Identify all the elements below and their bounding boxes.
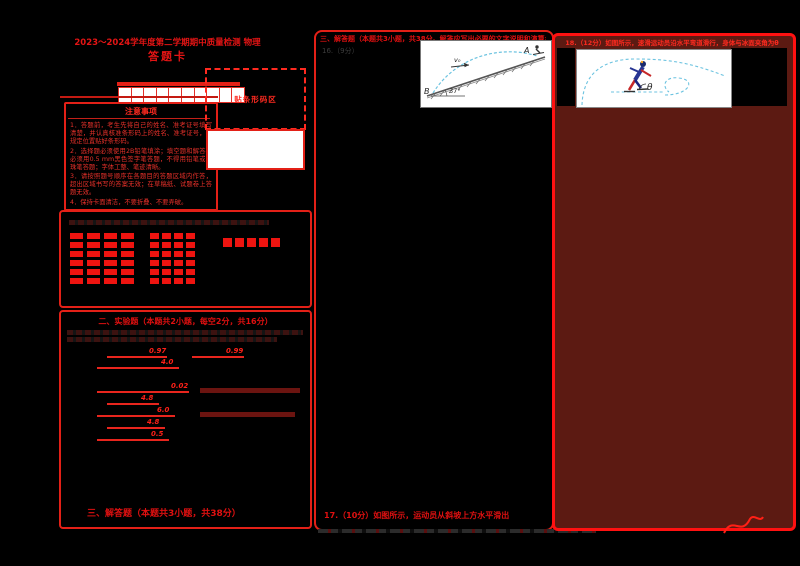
exam-number-cell [118, 87, 132, 103]
label-theta: θ [647, 83, 653, 93]
answer-bubble [104, 242, 117, 248]
answer-sheet-page: 2023～2024学年度第二学期期中质量检测 物理 答题卡 注意事项 1．答题前… [0, 0, 800, 566]
answer-bubble [186, 269, 195, 275]
answer-bubble [150, 251, 159, 257]
answer-bubble [186, 278, 195, 284]
answer-bubble [121, 278, 134, 284]
faint-print-line [69, 220, 269, 225]
answer-bubble [174, 251, 183, 257]
notice-box: 注意事项 1．答题前，考生先将自己的姓名、准考证号填写清楚，并认真核准条形码上的… [64, 102, 218, 211]
solution-section-header: 三、解答题（本题共3小题，共38分） [87, 506, 302, 519]
choice-section [59, 210, 312, 308]
answer-bubble [150, 269, 159, 275]
q16-section: 三、解答题（本题共3小题，共38分。解答应写出必要的文字说明和演算步骤） 16.… [314, 30, 554, 531]
answer-blank [107, 427, 165, 429]
track-curves [582, 59, 725, 105]
faint-question-text [67, 330, 303, 335]
notice-item: 2．选择题必须使用2B铅笔填涂；填空题和解答题必须用0.5 mm黑色签字笔答题，… [70, 148, 212, 173]
answer-bubble [104, 233, 117, 239]
q18-header: 18.（12分）如图所示，速滑运动员沿水平弯道滑行，身体与冰面夹角为θ [558, 37, 786, 47]
answer-bubble [70, 242, 83, 248]
answer-bubble [174, 269, 183, 275]
handwritten-answer: 0.5 [151, 430, 163, 438]
answer-bubble [150, 233, 159, 239]
handwritten-answer: 6.0 [157, 406, 169, 414]
label-B: B [424, 87, 430, 96]
exam-number-cell [156, 87, 170, 103]
answer-bubble [70, 269, 83, 275]
notice-title: 注意事项 [66, 106, 216, 117]
marker-square [271, 238, 280, 247]
answer-bubble [87, 251, 100, 257]
answer-bubble [162, 233, 171, 239]
v0-arrowhead [464, 63, 469, 67]
answer-blank [97, 439, 169, 441]
label-angle: 37° [449, 87, 461, 95]
dark-patch [557, 48, 575, 106]
answer-bubble [70, 251, 83, 257]
answer-blank [107, 403, 159, 405]
answer-bubble [121, 260, 134, 266]
handwritten-answer: 0.99 [226, 347, 243, 355]
slope-line2 [427, 59, 545, 98]
exam-number-cell [181, 87, 195, 103]
exam-number-cell [131, 87, 145, 103]
answer-bubble [186, 233, 195, 239]
notice-item: 1．答题前，考生先将自己的姓名、准考证号填写清楚，并认真核准条形码上的姓名、准考… [70, 122, 212, 147]
dark-patch [731, 48, 787, 106]
answer-blank [97, 367, 179, 369]
slope-line [427, 57, 545, 96]
answer-bubble [104, 269, 117, 275]
exam-number-cell [143, 87, 157, 103]
answer-bubble [150, 278, 159, 284]
answer-bubble [186, 251, 195, 257]
barcode-area: 贴条形码区 [205, 68, 306, 130]
ink-band [200, 412, 295, 417]
q17-header: 17.（10分）如图所示，运动员从斜坡上方水平滑出 [324, 510, 546, 521]
answer-bubble [87, 242, 100, 248]
notice-item: 4．保持卡面清洁，不要折叠、不要弄破。 [70, 199, 212, 207]
handwritten-answer: 0.02 [171, 382, 188, 390]
divider [68, 118, 210, 119]
answer-bubble [104, 251, 117, 257]
answer-bubble [87, 260, 100, 266]
answer-bubble [70, 278, 83, 284]
marker-square [235, 238, 244, 247]
exam-number-cell [168, 87, 182, 103]
barcode-blank-box [206, 129, 305, 170]
answer-bubble [162, 269, 171, 275]
answer-bubble [70, 233, 83, 239]
barcode-label: 贴条形码区 [234, 94, 277, 105]
answer-bubble [87, 233, 100, 239]
answer-bubble [104, 260, 117, 266]
answer-bubble [174, 242, 183, 248]
skier-figure [533, 45, 544, 54]
skater-diagram: θ [576, 49, 732, 108]
grid-outline [60, 96, 218, 98]
marker-square [223, 238, 232, 247]
ink-band [200, 388, 300, 393]
handwritten-answer: 0.97 [149, 347, 166, 355]
answer-bubble [186, 242, 195, 248]
answer-bubble [174, 260, 183, 266]
marker-square [247, 238, 256, 247]
q18-section: 18.（12分）如图所示，速滑运动员沿水平弯道滑行，身体与冰面夹角为θ [552, 33, 796, 531]
answer-bubble [121, 233, 134, 239]
label-v0: v₀ [454, 56, 461, 64]
answer-bubble [104, 278, 117, 284]
answer-blank [192, 356, 244, 358]
label-A: A [523, 46, 529, 55]
handwritten-answer: 4.8 [141, 394, 153, 402]
incline-diagram-svg: A B 37° v₀ [421, 41, 551, 107]
experiment-section-header: 二、实验题（本题共2小题，每空2分，共16分） [61, 316, 310, 327]
answer-bubble [150, 260, 159, 266]
exam-subtitle: 答题卡 [60, 48, 275, 64]
answer-bubble [174, 278, 183, 284]
skater-diagram-svg: θ [577, 50, 731, 107]
fill-section: 二、实验题（本题共2小题，每空2分，共16分） 三、解答题（本题共3小题，共38… [59, 310, 312, 529]
answer-bubble [174, 233, 183, 239]
answer-bubble [121, 242, 134, 248]
answer-blank [107, 356, 167, 358]
notice-item: 3．请按照题号顺序在各题目的答题区域内作答，超出区域书写的答案无效；在草稿纸、试… [70, 173, 212, 198]
handwritten-answer: 4.8 [147, 418, 159, 426]
faint-question-text [67, 337, 277, 342]
marker-square [259, 238, 268, 247]
answer-bubble [87, 269, 100, 275]
answer-blank [97, 415, 175, 417]
answer-bubble [162, 278, 171, 284]
answer-bubble [162, 260, 171, 266]
angle-arc [445, 90, 447, 96]
incline-diagram: A B 37° v₀ [420, 40, 552, 108]
answer-bubble [162, 242, 171, 248]
answer-bubble [186, 260, 195, 266]
answer-bubble [162, 251, 171, 257]
red-squiggle-mark [721, 511, 765, 539]
exam-title: 2023～2024学年度第二学期期中质量检测 物理 [60, 36, 275, 48]
answer-bubble [70, 260, 83, 266]
answer-blank [97, 391, 189, 393]
answer-bubble [87, 278, 100, 284]
q16-number: 16.（9分） [322, 46, 359, 56]
answer-bubble [121, 269, 134, 275]
handwritten-answer: 4.0 [161, 358, 173, 366]
answer-bubble [121, 251, 134, 257]
answer-bubble [150, 242, 159, 248]
notice-list: 1．答题前，考生先将自己的姓名、准考证号填写清楚，并认真核准条形码上的姓名、准考… [66, 120, 216, 210]
